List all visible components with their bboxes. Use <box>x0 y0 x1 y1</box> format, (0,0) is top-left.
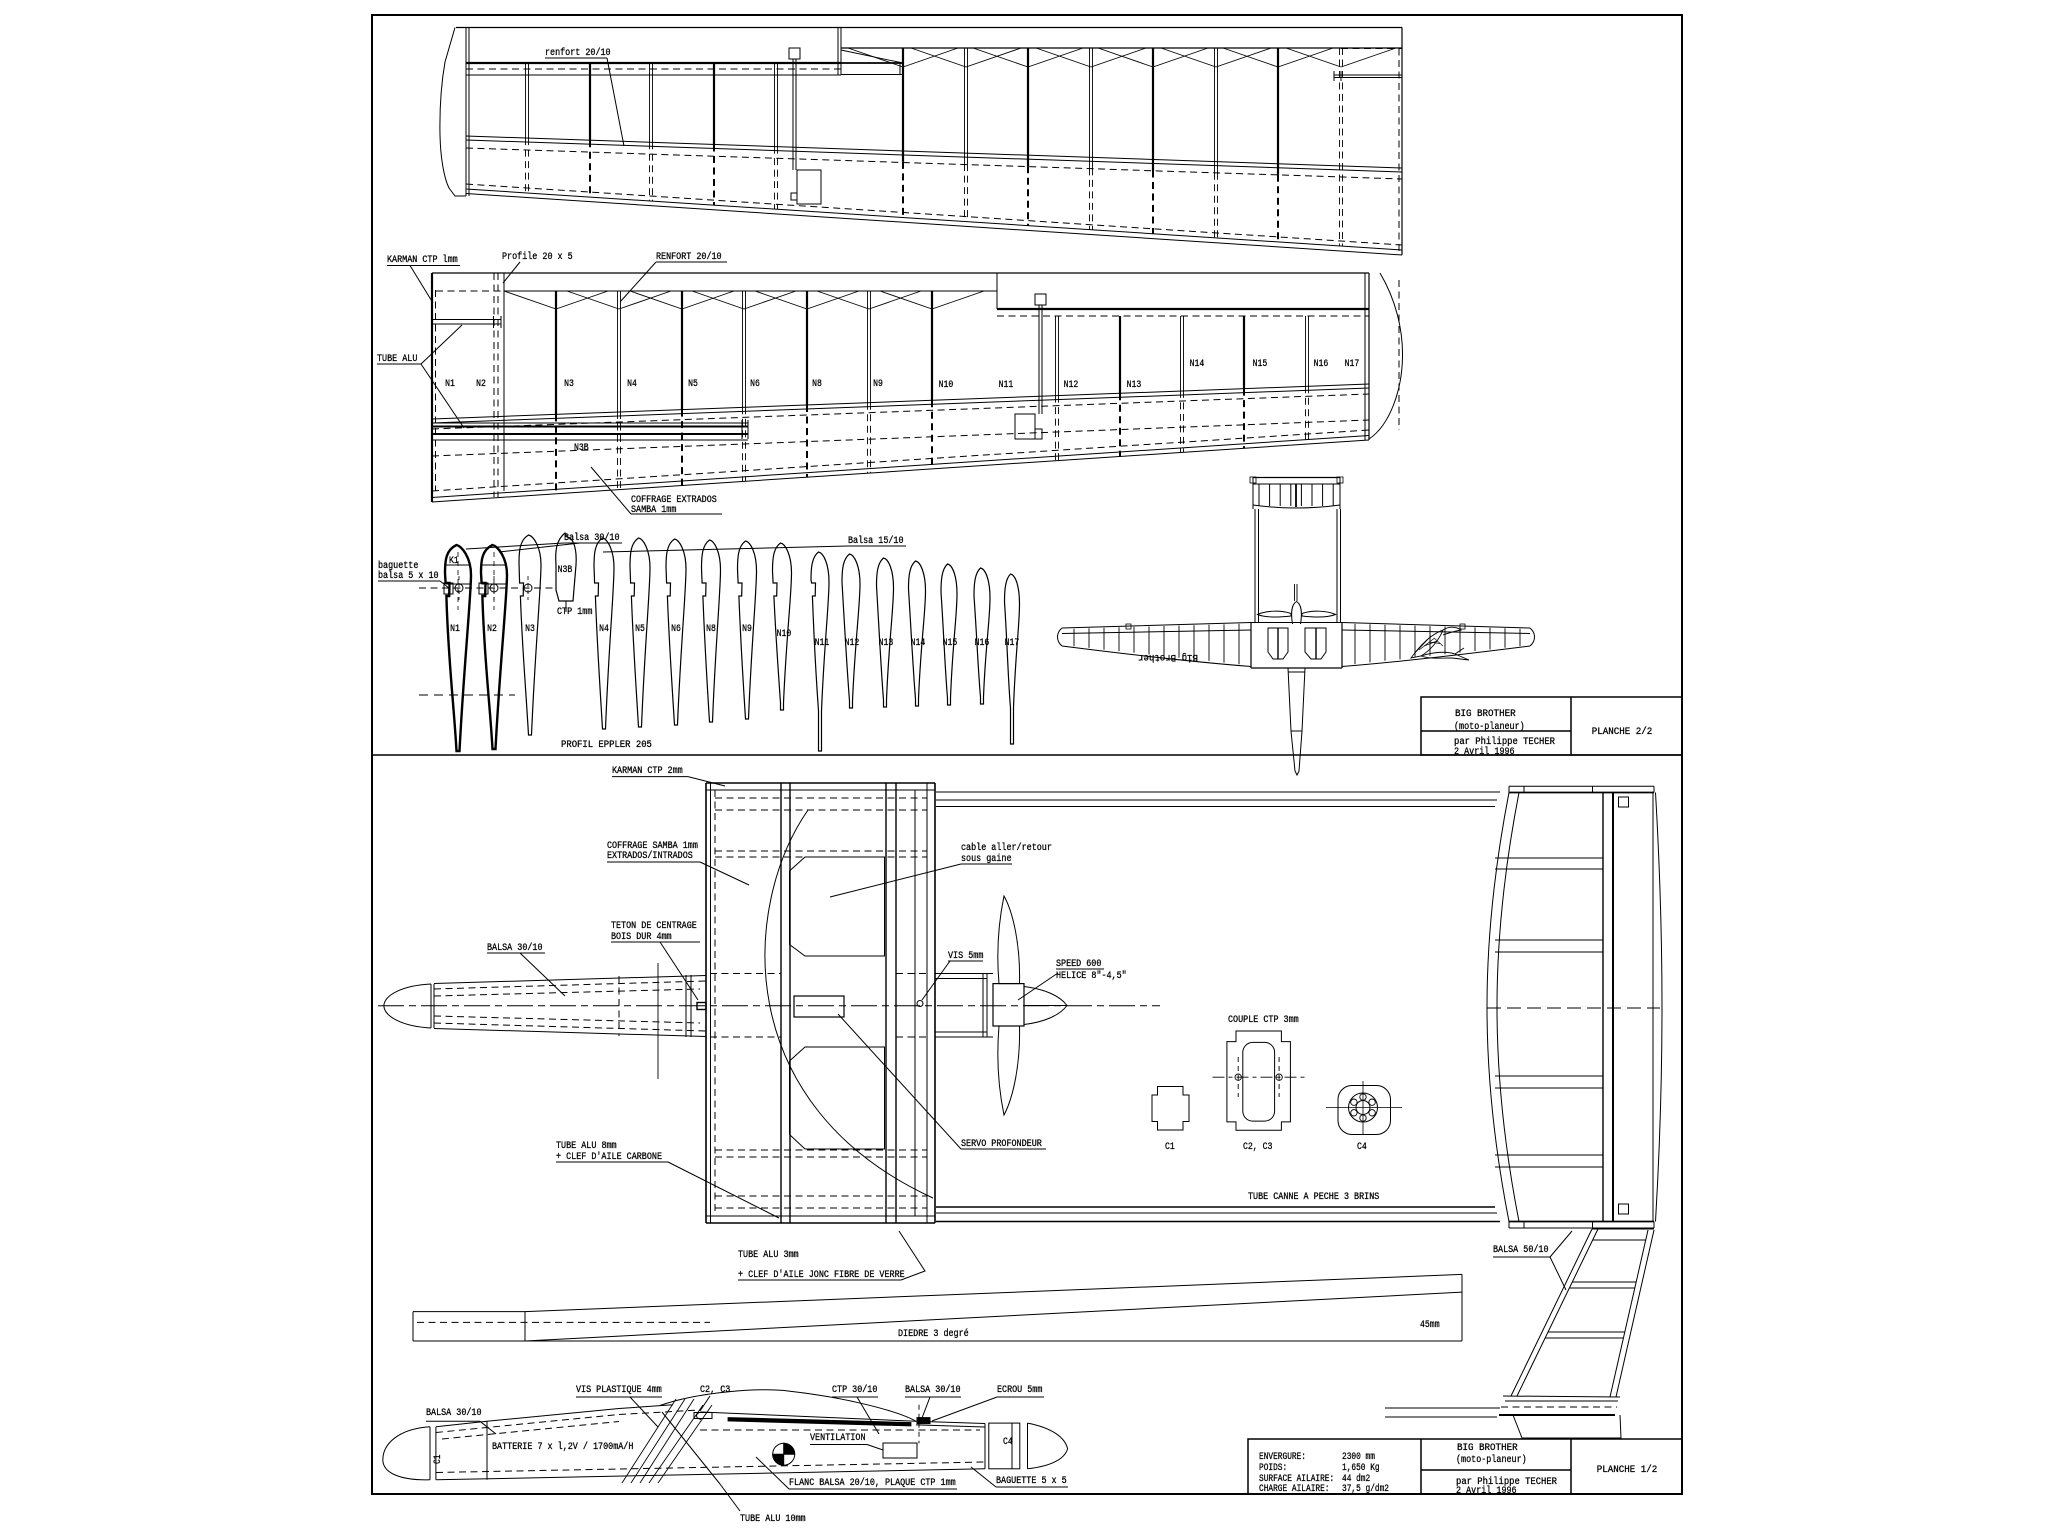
svg-text:N1: N1 <box>450 624 460 635</box>
svg-text:BALSA 50/10: BALSA 50/10 <box>1493 1244 1549 1256</box>
svg-text:balsa 5 x 10: balsa 5 x 10 <box>378 570 439 582</box>
svg-text:CTP 30/10: CTP 30/10 <box>832 1384 877 1396</box>
svg-text:Big Brother: Big Brother <box>1138 651 1198 663</box>
svg-text:N12: N12 <box>1064 380 1079 391</box>
svg-text:C2, C3: C2, C3 <box>1243 1142 1272 1153</box>
svg-text:N16: N16 <box>1314 359 1329 370</box>
svg-text:TETON DE CENTRAGE: TETON DE CENTRAGE <box>611 921 697 932</box>
svg-text:SERVO PROFONDEUR: SERVO PROFONDEUR <box>961 1139 1042 1150</box>
svg-text:FLANC BALSA 20/10, PLAQUE CTP: FLANC BALSA 20/10, PLAQUE CTP 1mm <box>789 1477 956 1489</box>
svg-text:VIS 5mm: VIS 5mm <box>948 951 983 962</box>
svg-text:Balsa 30/10: Balsa 30/10 <box>564 532 620 544</box>
svg-text:COUPLE CTP 3mm: COUPLE CTP 3mm <box>1228 1015 1299 1026</box>
svg-text:EXTRADOS/INTRADOS: EXTRADOS/INTRADOS <box>607 850 693 862</box>
svg-text:DIEDRE 3 degré: DIEDRE 3 degré <box>898 1328 969 1340</box>
svg-text:BALSA 30/10: BALSA 30/10 <box>426 1407 482 1419</box>
svg-text:+ CLEF D'AILE JONC FIBRE DE VE: + CLEF D'AILE JONC FIBRE DE VERRE <box>738 1269 905 1281</box>
svg-text:PLANCHE 1/2: PLANCHE 1/2 <box>1597 1464 1658 1476</box>
svg-text:TUBE ALU 3mm: TUBE ALU 3mm <box>738 1250 799 1261</box>
svg-text:C4: C4 <box>1003 1437 1013 1448</box>
svg-text:(moto-planeur): (moto-planeur) <box>1456 1454 1527 1466</box>
svg-text:TUBE ALU 10mm: TUBE ALU 10mm <box>740 1514 806 1525</box>
svg-text:CHARGE AILAIRE:: CHARGE AILAIRE: <box>1259 1484 1330 1495</box>
svg-text:N15: N15 <box>943 638 958 649</box>
svg-text:N5: N5 <box>688 379 698 390</box>
svg-text:CTP 1mm: CTP 1mm <box>557 607 592 618</box>
svg-text:N17: N17 <box>1005 638 1020 649</box>
svg-text:N10: N10 <box>939 380 954 391</box>
svg-text:N2: N2 <box>476 379 486 390</box>
svg-text:45mm: 45mm <box>1420 1320 1440 1331</box>
svg-text:N4: N4 <box>599 624 609 635</box>
svg-text:N17: N17 <box>1345 359 1360 370</box>
svg-text:sous gaine: sous gaine <box>961 853 1012 865</box>
svg-text:TUBE ALU: TUBE ALU <box>377 354 417 365</box>
svg-text:VIS PLASTIQUE 4mm: VIS PLASTIQUE 4mm <box>576 1385 662 1396</box>
svg-text:BIG BROTHER: BIG BROTHER <box>1457 1443 1518 1454</box>
svg-text:HELICE 8"-4,5": HELICE 8"-4,5" <box>1056 970 1127 982</box>
svg-text:Profile 20 x 5: Profile 20 x 5 <box>502 251 573 263</box>
svg-text:N3B: N3B <box>558 565 573 576</box>
svg-text:K1: K1 <box>449 556 459 567</box>
svg-text:N3B: N3B <box>574 443 589 454</box>
svg-text:2300 mm: 2300 mm <box>1342 1452 1375 1463</box>
svg-text:BALSA 30/10: BALSA 30/10 <box>905 1384 961 1396</box>
svg-text:C1: C1 <box>1165 1142 1175 1153</box>
svg-text:(moto-planeur): (moto-planeur) <box>1454 721 1525 733</box>
svg-text:N16: N16 <box>975 638 990 649</box>
svg-text:N6: N6 <box>750 379 760 390</box>
svg-text:37,5 g/dm2: 37,5 g/dm2 <box>1342 1483 1389 1495</box>
svg-text:renfort 20/10: renfort 20/10 <box>545 47 611 59</box>
svg-text:TUBE ALU 8mm: TUBE ALU 8mm <box>556 1141 617 1152</box>
svg-text:N2: N2 <box>487 624 497 635</box>
svg-text:PLANCHE 2/2: PLANCHE 2/2 <box>1592 726 1653 738</box>
svg-text:N15: N15 <box>1253 359 1268 370</box>
svg-text:ENVERGURE:: ENVERGURE: <box>1259 1452 1306 1463</box>
svg-text:N4: N4 <box>627 379 637 390</box>
svg-text:2 Avril 1996: 2 Avril 1996 <box>1456 1485 1517 1497</box>
svg-text:N8: N8 <box>706 624 716 635</box>
svg-text:N8: N8 <box>812 379 822 390</box>
svg-text:N13: N13 <box>1127 380 1142 391</box>
svg-text:N11: N11 <box>999 380 1014 391</box>
svg-text:C4: C4 <box>1357 1142 1367 1153</box>
svg-text:ECROU 5mm: ECROU 5mm <box>997 1385 1042 1396</box>
svg-text:BIG BROTHER: BIG BROTHER <box>1455 709 1516 720</box>
svg-text:BATTERIE 7 x l,2V / 1700mA/H: BATTERIE 7 x l,2V / 1700mA/H <box>492 1441 633 1453</box>
svg-text:N9: N9 <box>742 624 752 635</box>
svg-text:N12: N12 <box>845 638 860 649</box>
svg-text:RENFORT 20/10: RENFORT 20/10 <box>656 251 722 263</box>
svg-text:PROFIL EPPLER 205: PROFIL EPPLER 205 <box>561 740 652 751</box>
svg-text:N3: N3 <box>525 624 535 635</box>
svg-text:N14: N14 <box>1190 359 1205 370</box>
svg-text:SPEED 600: SPEED 600 <box>1056 959 1101 970</box>
svg-text:POIDS:: POIDS: <box>1259 1463 1287 1474</box>
svg-text:N5: N5 <box>635 624 645 635</box>
svg-text:N1: N1 <box>445 379 455 390</box>
svg-text:N9: N9 <box>873 379 883 390</box>
svg-text:C2, C3: C2, C3 <box>700 1385 730 1396</box>
svg-text:N13: N13 <box>879 638 894 649</box>
svg-text:1,650 Kg: 1,650 Kg <box>1342 1463 1380 1474</box>
svg-text:Balsa 15/10: Balsa 15/10 <box>848 535 904 547</box>
svg-text:+ CLEF D'AILE CARBONE: + CLEF D'AILE CARBONE <box>556 1151 662 1163</box>
svg-text:BOIS DUR 4mm: BOIS DUR 4mm <box>611 932 672 943</box>
svg-text:N10: N10 <box>777 629 792 640</box>
svg-text:N6: N6 <box>671 624 681 635</box>
svg-text:N3: N3 <box>564 379 574 390</box>
svg-text:cable aller/retour: cable aller/retour <box>961 842 1052 854</box>
svg-text:C1: C1 <box>433 1455 444 1464</box>
svg-text:BALSA 30/10: BALSA 30/10 <box>487 942 543 954</box>
svg-text:KARMAN CTP 2mm: KARMAN CTP 2mm <box>612 766 683 777</box>
svg-text:VENTILATION: VENTILATION <box>810 1433 866 1444</box>
svg-text:TUBE CANNE A PECHE 3 BRINS: TUBE CANNE A PECHE 3 BRINS <box>1248 1192 1379 1203</box>
svg-text:KARMAN CTP lmm: KARMAN CTP lmm <box>387 254 458 266</box>
svg-text:N14: N14 <box>911 638 926 649</box>
svg-text:2 Avril 1996: 2 Avril 1996 <box>1454 746 1515 758</box>
svg-text:BAGUETTE 5 x 5: BAGUETTE 5 x 5 <box>996 1476 1067 1487</box>
svg-text:N11: N11 <box>815 638 830 649</box>
